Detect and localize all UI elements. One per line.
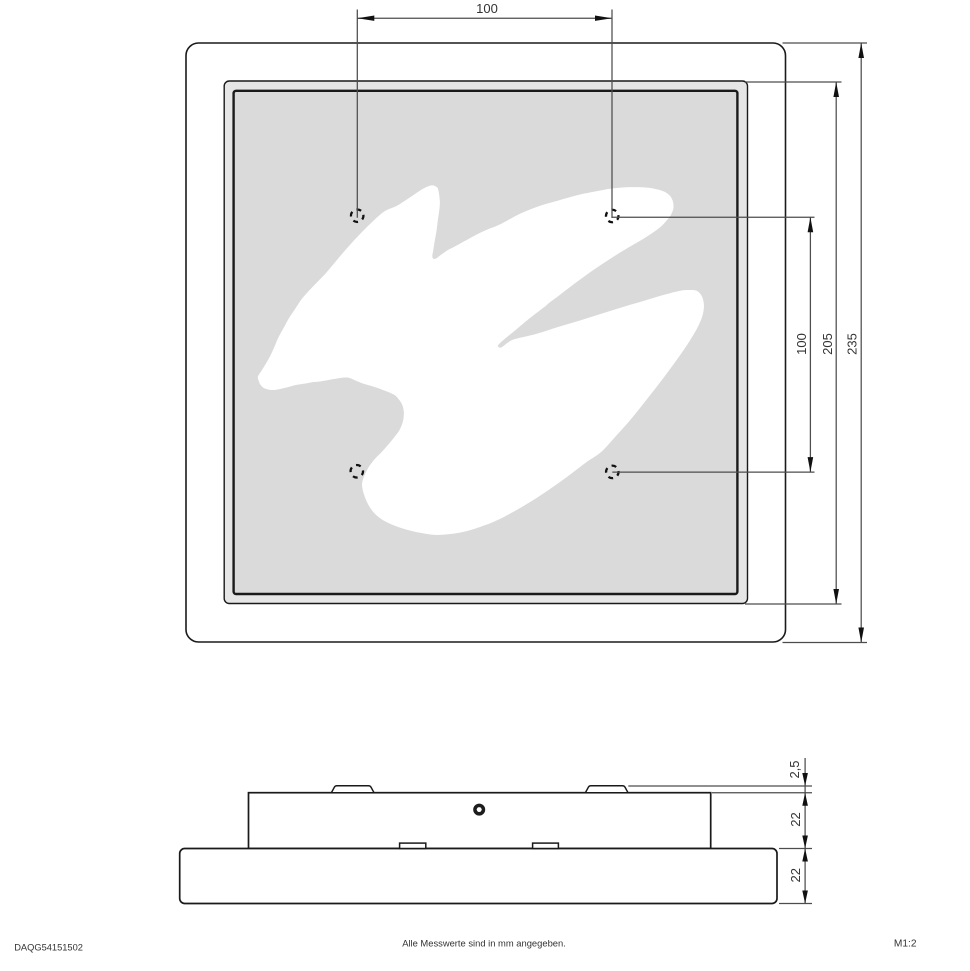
svg-text:235: 235 [844,333,859,355]
svg-text:100: 100 [476,1,498,16]
svg-text:Alle Messwerte sind in mm ange: Alle Messwerte sind in mm angegeben. [402,938,566,949]
svg-text:205: 205 [820,333,835,355]
svg-text:M1:2: M1:2 [894,939,917,950]
svg-text:22: 22 [788,812,803,826]
svg-text:DAQG54151502: DAQG54151502 [14,943,83,953]
svg-text:2,5: 2,5 [787,760,802,778]
svg-text:100: 100 [794,333,809,355]
svg-text:22: 22 [788,868,803,882]
